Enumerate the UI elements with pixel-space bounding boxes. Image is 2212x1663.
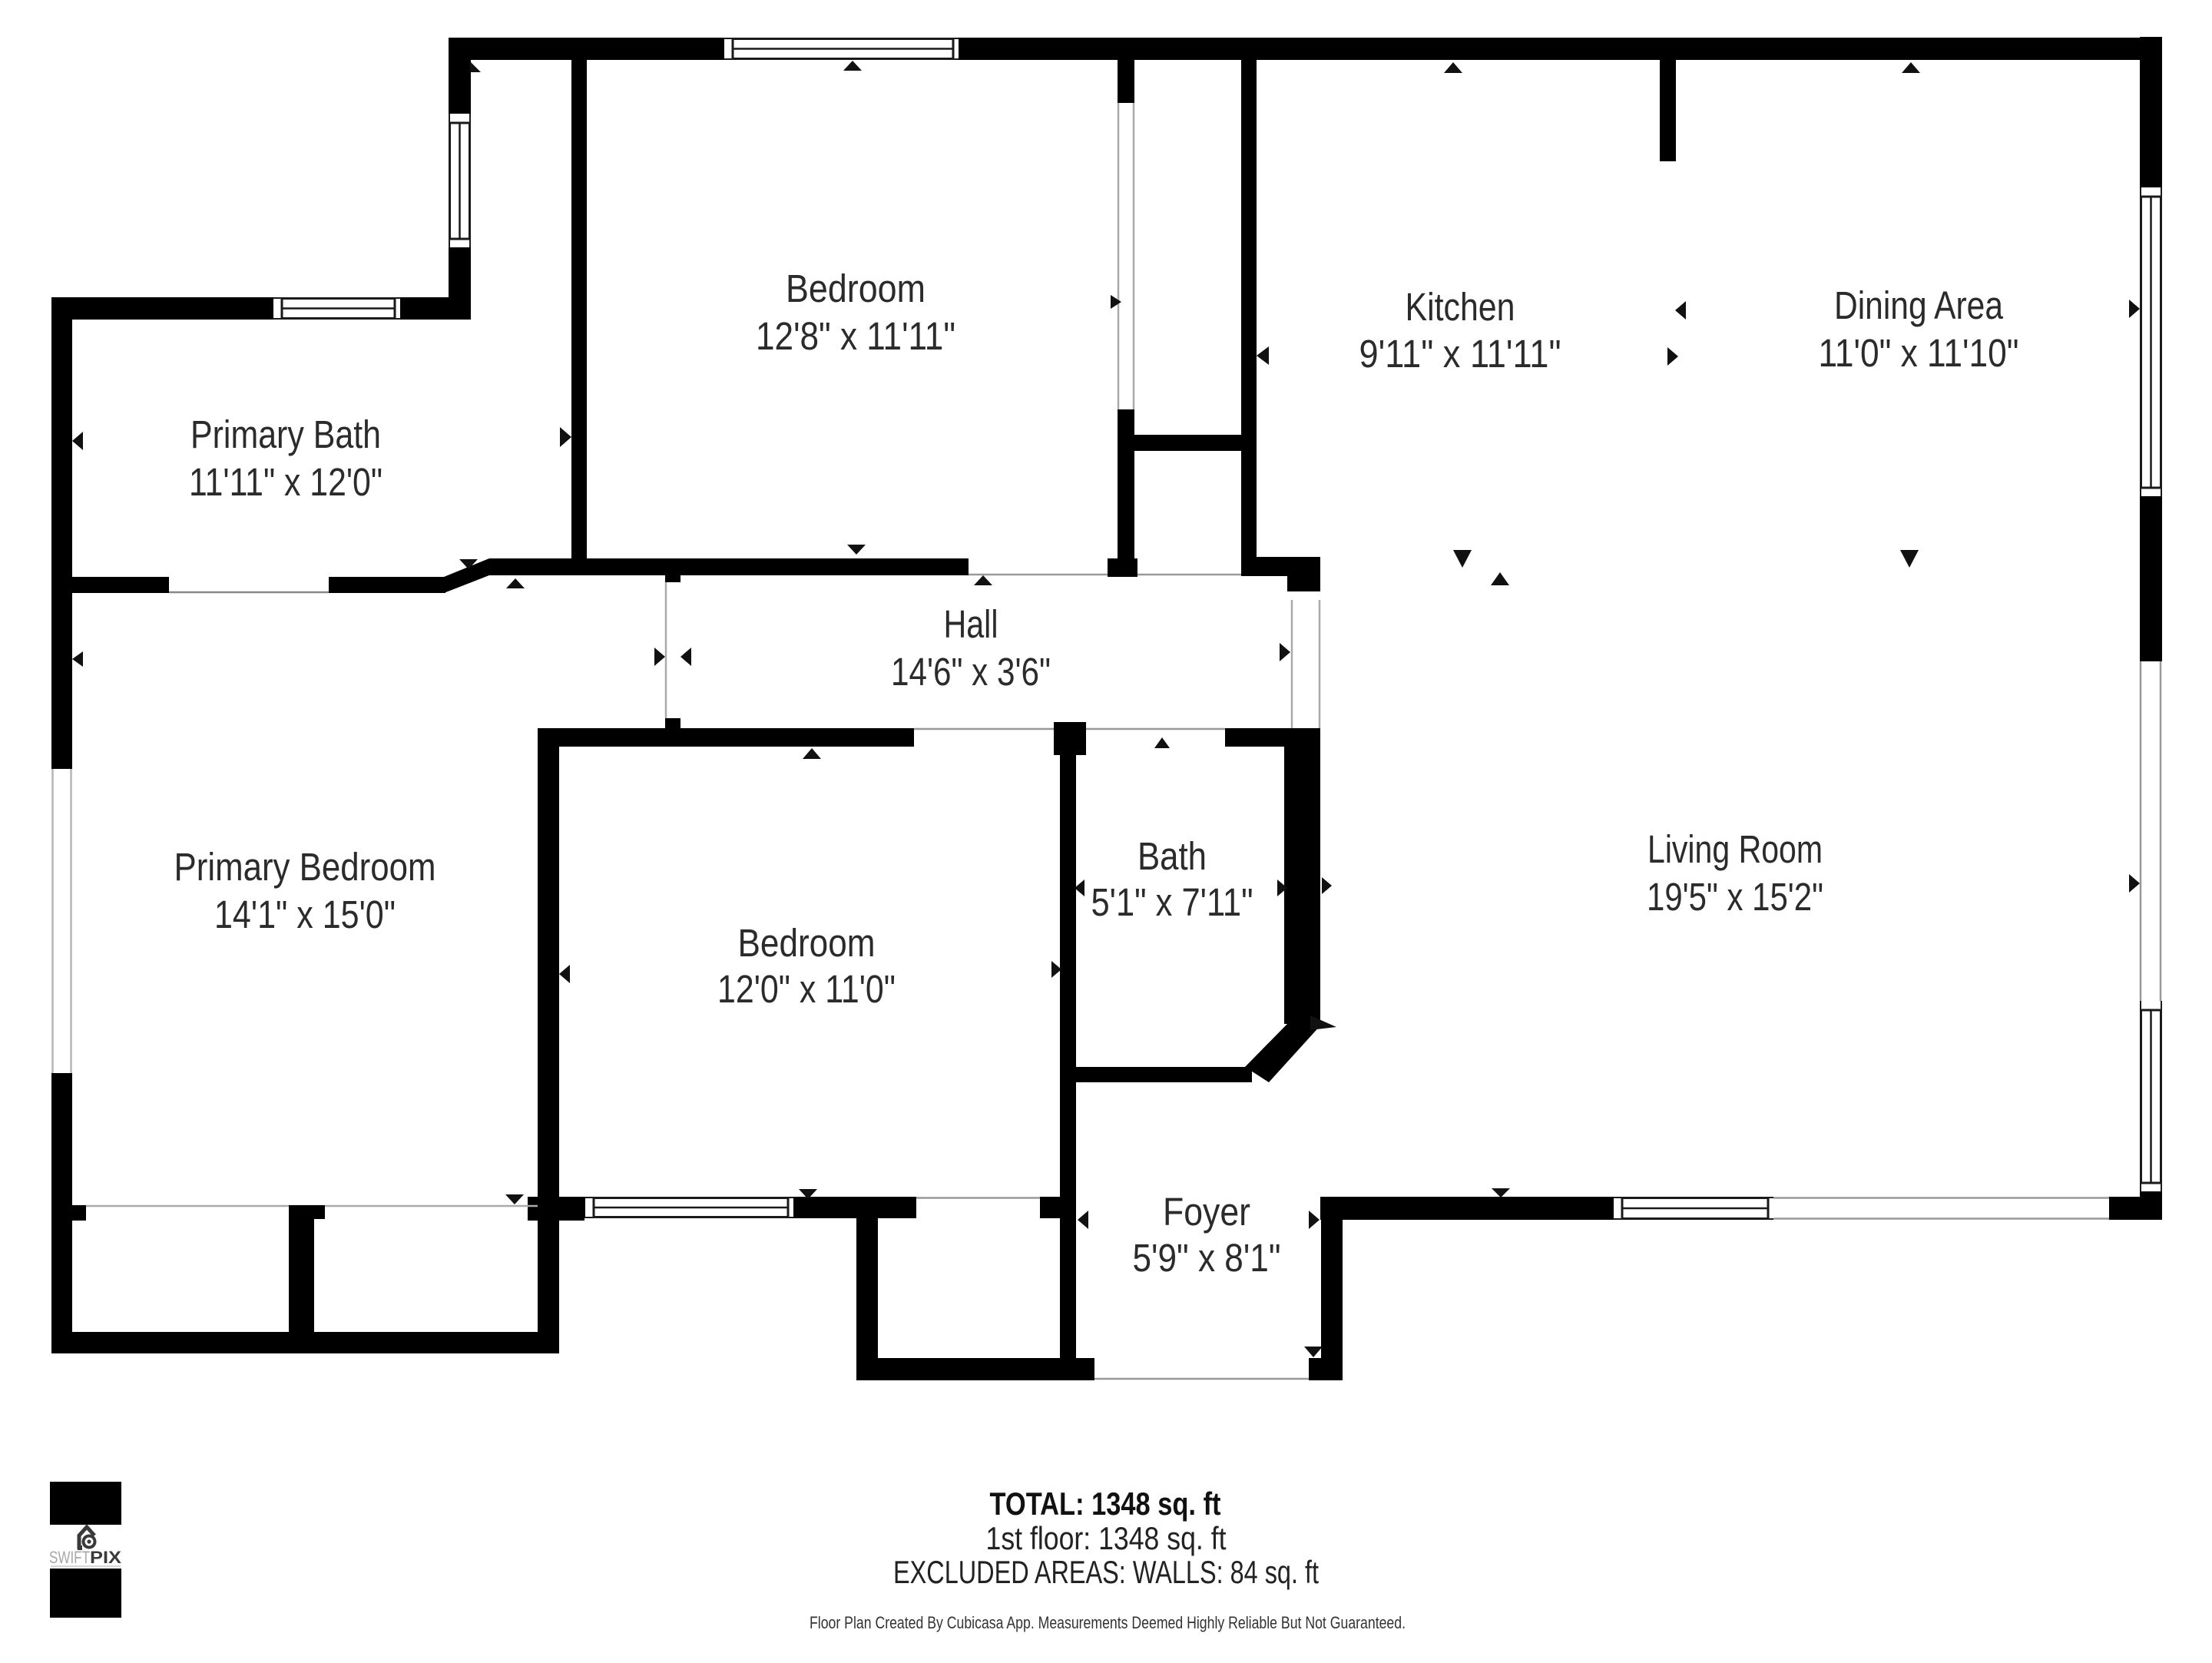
svg-text:Bedroom: Bedroom bbox=[738, 921, 876, 965]
svg-text:Kitchen: Kitchen bbox=[1406, 285, 1515, 329]
svg-text:12'8" x 11'11": 12'8" x 11'11" bbox=[756, 314, 955, 358]
svg-text:TOTAL: 1348 sq. ft: TOTAL: 1348 sq. ft bbox=[990, 1486, 1221, 1522]
svg-text:5'1" x 7'11": 5'1" x 7'11" bbox=[1091, 880, 1253, 924]
svg-text:Dining Area: Dining Area bbox=[1834, 283, 2004, 327]
svg-text:Bedroom: Bedroom bbox=[786, 267, 926, 310]
svg-text:12'0" x 11'0": 12'0" x 11'0" bbox=[717, 967, 896, 1011]
svg-text:Hall: Hall bbox=[944, 602, 998, 646]
svg-text:5'9" x 8'1": 5'9" x 8'1" bbox=[1133, 1236, 1281, 1280]
svg-text:14'6" x 3'6": 14'6" x 3'6" bbox=[891, 650, 1051, 694]
svg-text:1st floor: 1348 sq. ft: 1st floor: 1348 sq. ft bbox=[986, 1520, 1227, 1556]
svg-text:EXCLUDED AREAS: WALLS: 84 sq.: EXCLUDED AREAS: WALLS: 84 sq. ft bbox=[893, 1554, 1319, 1590]
svg-text:Primary Bath: Primary Bath bbox=[190, 412, 381, 456]
svg-text:9'11" x 11'11": 9'11" x 11'11" bbox=[1359, 332, 1561, 376]
svg-text:Bath: Bath bbox=[1137, 834, 1207, 878]
svg-text:PIX: PIX bbox=[90, 1548, 121, 1567]
svg-text:19'5" x 15'2": 19'5" x 15'2" bbox=[1647, 875, 1823, 919]
svg-text:Primary Bedroom: Primary Bedroom bbox=[174, 845, 436, 889]
svg-text:14'1" x 15'0": 14'1" x 15'0" bbox=[214, 893, 396, 936]
svg-text:11'11" x 12'0": 11'11" x 12'0" bbox=[189, 460, 382, 504]
svg-text:11'0" x 11'10": 11'0" x 11'10" bbox=[1819, 331, 2019, 375]
svg-text:SWIFT: SWIFT bbox=[49, 1548, 90, 1567]
svg-text:Floor Plan Created By Cubicasa: Floor Plan Created By Cubicasa App. Meas… bbox=[810, 1613, 1406, 1632]
svg-text:Living Room: Living Room bbox=[1647, 827, 1823, 871]
svg-text:Foyer: Foyer bbox=[1163, 1190, 1250, 1234]
